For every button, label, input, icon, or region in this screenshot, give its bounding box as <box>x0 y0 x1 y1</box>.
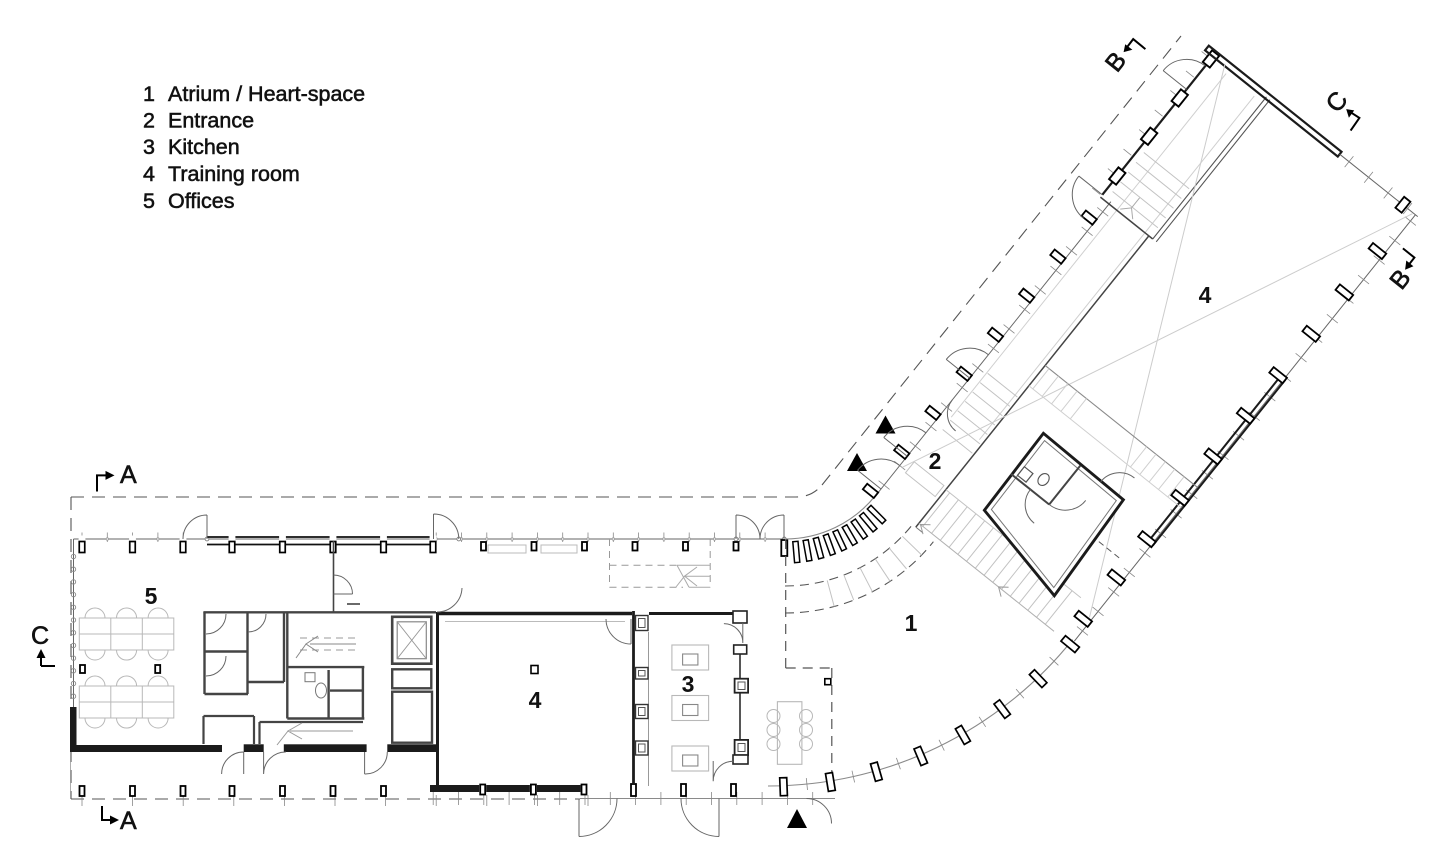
svg-text:2: 2 <box>143 109 155 133</box>
svg-text:4: 4 <box>143 162 155 186</box>
svg-text:A: A <box>120 461 137 489</box>
svg-text:2: 2 <box>929 448 942 474</box>
svg-text:Entrance: Entrance <box>168 109 254 133</box>
svg-text:Offices: Offices <box>168 189 235 213</box>
svg-text:4: 4 <box>529 687 542 713</box>
svg-text:1: 1 <box>905 610 918 636</box>
svg-text:4: 4 <box>1199 282 1212 308</box>
svg-text:5: 5 <box>143 189 155 213</box>
svg-text:1: 1 <box>143 82 155 106</box>
svg-text:A: A <box>120 807 137 835</box>
svg-text:Training room: Training room <box>168 162 300 186</box>
svg-text:Atrium / Heart-space: Atrium / Heart-space <box>168 82 365 106</box>
svg-text:Kitchen: Kitchen <box>168 135 240 159</box>
svg-text:3: 3 <box>682 671 695 697</box>
svg-text:3: 3 <box>143 135 155 159</box>
svg-text:C: C <box>31 622 49 650</box>
svg-text:5: 5 <box>145 583 158 609</box>
